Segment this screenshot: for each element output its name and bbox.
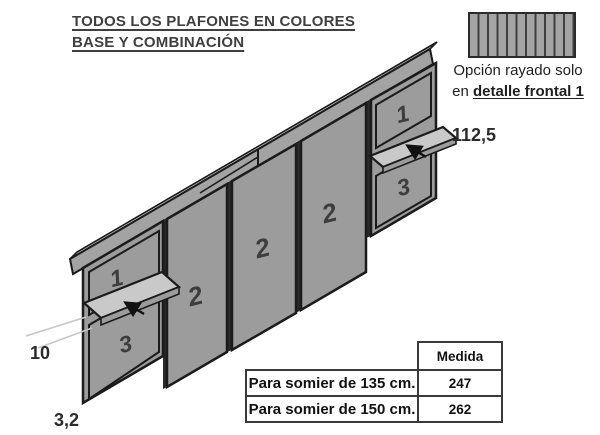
table-row: Para somier de 150 cm. 262 [245, 395, 503, 423]
dim-shelf-depth: 10 [30, 343, 50, 363]
size-table-header-spacer [245, 341, 419, 371]
size-table-value-135: 247 [417, 369, 503, 397]
size-table-header-medida: Medida [417, 341, 503, 371]
size-table: Medida Para somier de 135 cm. 247 Para s… [245, 341, 503, 423]
size-table-header-row: Medida [245, 341, 503, 371]
size-table-label-135: Para somier de 135 cm. [245, 369, 419, 397]
size-table-label-150: Para somier de 150 cm. [245, 395, 419, 423]
spec-sheet: TODOS LOS PLAFONES EN COLORES BASE Y COM… [0, 0, 600, 435]
table-row: Para somier de 135 cm. 247 [245, 369, 503, 397]
dim-panel-thickness: 3,2 [54, 410, 79, 430]
size-table-value-150: 262 [417, 395, 503, 423]
dim-height-to-shelf: 112,5 [452, 125, 496, 145]
